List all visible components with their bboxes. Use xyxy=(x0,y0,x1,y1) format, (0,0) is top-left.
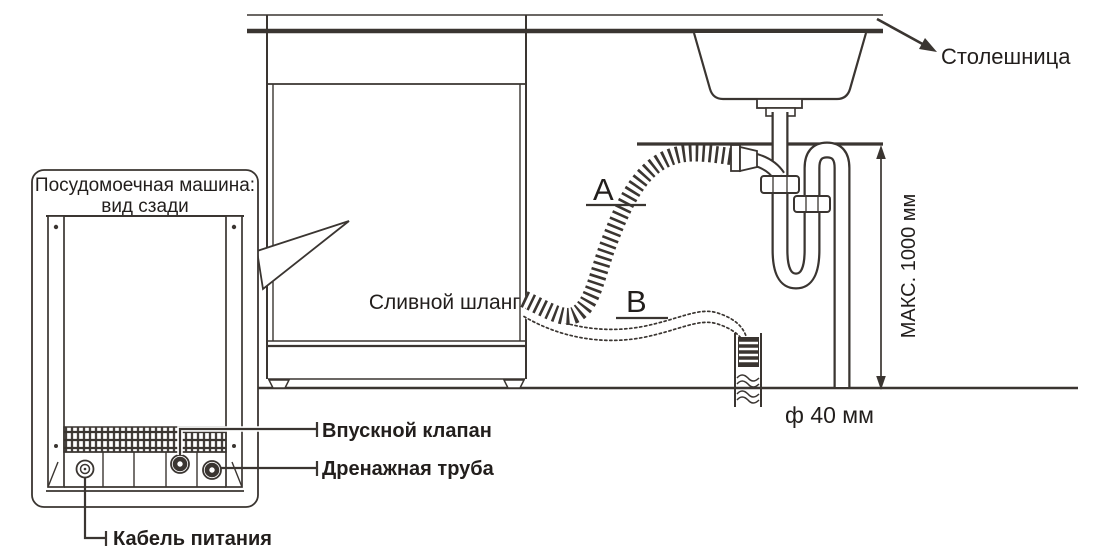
screw-top-right xyxy=(232,225,236,229)
inlet-valve-connector xyxy=(171,455,189,473)
screw-top-left xyxy=(54,225,58,229)
screw-bottom-left xyxy=(54,444,58,448)
power-cable-connector xyxy=(77,461,94,478)
standpipe xyxy=(735,333,761,407)
countertop-pointer xyxy=(877,19,937,52)
sink xyxy=(694,33,866,116)
hose-coupling xyxy=(731,145,757,171)
svg-text:B: B xyxy=(626,284,647,319)
countertop-label: Столешница xyxy=(941,44,1071,69)
sink-drain-flange xyxy=(757,99,802,108)
drain-hose-label: Сливной шланг xyxy=(369,291,521,314)
rear-view-title-line2: вид сзади xyxy=(101,196,189,217)
max-height-label: МАКС. 1000 мм xyxy=(898,194,920,339)
dishwasher-foot-right xyxy=(504,380,524,388)
dishwasher-foot-left xyxy=(269,380,289,388)
rear-view-callout: Посудомоечная машина: вид сзади xyxy=(32,170,349,507)
callout-wedge xyxy=(257,221,349,289)
screw-bottom-right xyxy=(232,444,236,448)
dimension-arrow: МАКС. 1000 мм xyxy=(876,145,920,390)
installation-diagram: МАКС. 1000 мм A B Столешница Сливной шла… xyxy=(0,0,1100,550)
diagram-canvas: МАКС. 1000 мм A B Столешница Сливной шла… xyxy=(0,0,1100,550)
drain-pipe-connector xyxy=(203,461,221,479)
drain-trap xyxy=(748,112,842,387)
dishwasher-side-view xyxy=(267,15,526,388)
trap-nut-lower xyxy=(794,196,830,212)
route-b-label: B xyxy=(616,284,668,319)
rear-view-title-line1: Посудомоечная машина: xyxy=(35,175,255,196)
pipe-diameter-label: ф 40 мм xyxy=(785,402,874,428)
trap-nut-upper xyxy=(761,176,799,193)
power-cable-label: Кабель питания xyxy=(113,528,272,550)
svg-text:A: A xyxy=(593,172,614,207)
hose-end-in-standpipe xyxy=(738,337,759,367)
drain-pipe-label: Дренажная труба xyxy=(322,458,495,480)
inlet-valve-label: Впускной клапан xyxy=(322,420,492,442)
countertop xyxy=(247,15,883,31)
sink-basin xyxy=(694,33,866,99)
